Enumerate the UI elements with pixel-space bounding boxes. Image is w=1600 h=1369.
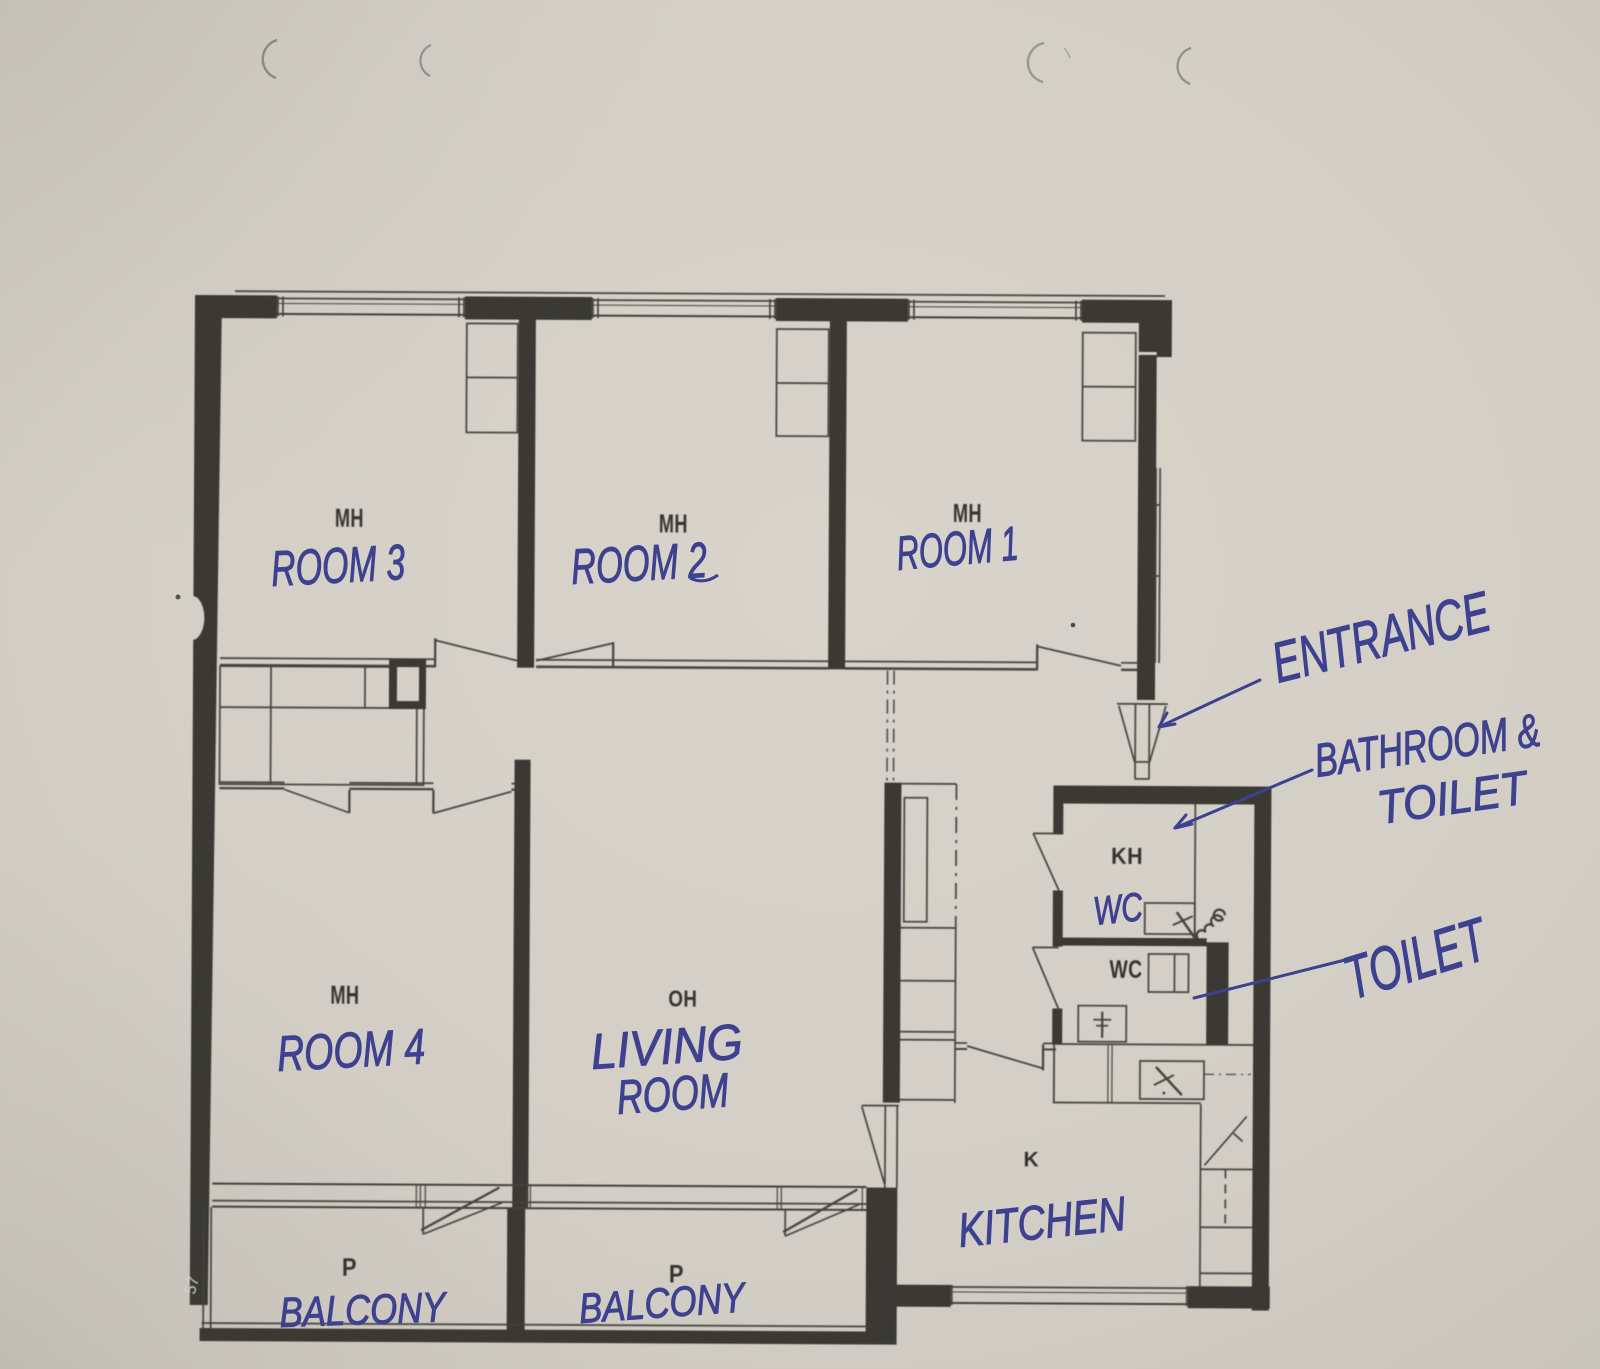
svg-text:ROOM 4: ROOM 4 [276, 1018, 427, 1082]
svg-text:P: P [342, 1254, 357, 1282]
svg-text:ROOM 1: ROOM 1 [894, 518, 1020, 581]
svg-text:OH: OH [668, 985, 697, 1011]
svg-text:ROOM 3: ROOM 3 [270, 534, 407, 597]
svg-text:KH: KH [1111, 843, 1143, 869]
svg-text:K: K [1023, 1148, 1039, 1171]
svg-text:MH: MH [330, 980, 359, 1010]
svg-text:WC: WC [1109, 956, 1142, 984]
svg-text:ROOM 2: ROOM 2 [570, 532, 709, 595]
svg-text:WC: WC [1091, 885, 1145, 934]
svg-text:MH: MH [335, 503, 364, 533]
svg-text:BALCONY: BALCONY [279, 1283, 449, 1336]
svg-text:ROOM: ROOM [615, 1064, 730, 1125]
